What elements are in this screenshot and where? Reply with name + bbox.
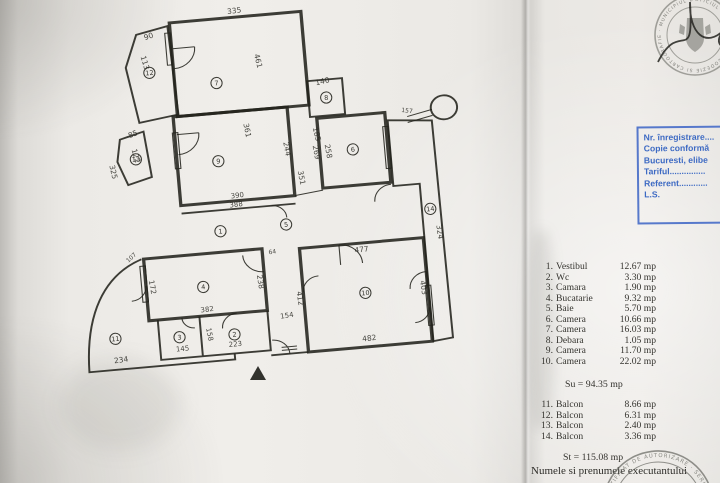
dimension-label: 335	[227, 5, 243, 16]
seal-bottom-curved-text: · CERTIFICAT DE AUTORIZARE · SERIA B ·	[588, 444, 711, 483]
stamp-line: Referent............	[644, 177, 720, 189]
signature-scrawl	[658, 2, 720, 62]
dimension-label: 90	[143, 30, 155, 42]
room-legend: 1. Vestibul 12.67 mp 2. Wc 3.30 mp 3. Ca…	[538, 262, 656, 367]
seal-coat-of-arms	[679, 18, 711, 52]
room-number-text: 8	[324, 94, 329, 102]
dimension-label: 388	[229, 200, 243, 210]
svg-text:OFICIUL DE CADASTRU GEODEZIE S: OFICIUL DE CADASTRU GEODEZIE SI CARTOGRA…	[640, 0, 720, 73]
dimension-label: 238	[255, 274, 266, 290]
dimension-label: 172	[147, 279, 159, 295]
dimension-label: 140	[314, 75, 330, 87]
dimension-label: 403	[418, 280, 429, 296]
room-number-text: 4	[201, 283, 206, 291]
dimension-label: 351	[296, 170, 308, 186]
scanned-cadastral-document: { "document": { "legend": { "rooms": [ {…	[0, 0, 720, 483]
legend-total: St = 115.08 mp	[563, 452, 623, 463]
dimension-label: 85	[127, 128, 140, 140]
dimension-label: 154	[280, 311, 295, 321]
room-area: 12.67 mp	[620, 262, 656, 273]
room-number-text: 10	[361, 289, 370, 298]
executor-name-label: Numele si prenumele executantului	[531, 465, 687, 477]
room-number-text: 3	[177, 333, 182, 341]
room-area: 22.02 mp	[620, 357, 656, 368]
north-arrow-icon	[250, 366, 266, 380]
dimension-label: 461	[252, 53, 264, 69]
room-number-text: 1	[218, 227, 223, 235]
room-name: Vestibul	[556, 262, 587, 273]
legend-row: 10. Camera 22.02 mp	[538, 357, 656, 368]
room-number: 14.	[538, 432, 553, 443]
dimension-label: 269	[311, 144, 323, 160]
room-number: 10.	[538, 357, 553, 368]
dimension-label: 361	[241, 122, 253, 138]
round-seal-bottom: · CERTIFICAT DE AUTORIZARE · SERIA B ·	[588, 444, 720, 483]
dimension-label: 234	[113, 354, 129, 365]
dimension-label: 64	[268, 248, 277, 256]
scan-fold-line	[521, 0, 531, 483]
stamp-line: L.S.	[644, 189, 720, 201]
dimension-label: 382	[200, 305, 214, 315]
room-area: 8.66 mp	[625, 400, 656, 411]
room-number-text: 2	[232, 331, 237, 339]
room-number-text: 14	[426, 205, 435, 214]
dimension-label: 324	[434, 224, 445, 240]
dimension-label: 412	[295, 291, 306, 307]
room-number-text: 9	[216, 157, 221, 165]
blue-registration-stamp: Nr. înregistrare.... Copie conformă Bucu…	[636, 125, 720, 224]
stamp-line: Tariful...............	[644, 166, 720, 178]
room-name: Balcon	[556, 400, 583, 411]
floor-plan-drawing: 3359011346114018536124432512285390388269…	[6, 0, 486, 400]
room-number-text: 13	[131, 155, 140, 164]
legend-row: 1. Vestibul 12.67 mp	[538, 262, 656, 273]
dimension-label: 258	[323, 143, 335, 159]
dimension-label: 185	[311, 126, 323, 142]
room-area: 3.36 mp	[625, 432, 656, 443]
room-number-text: 11	[111, 335, 120, 344]
dimension-label: 482	[362, 333, 378, 344]
round-seal-top: OFICIUL DE CADASTRU GEODEZIE SI CARTOGRA…	[640, 0, 720, 85]
room-name: Camera	[556, 357, 586, 368]
dimension-label: 244	[281, 141, 293, 157]
dimension-label: 390	[230, 191, 244, 201]
stamp-line: Copie conformă	[644, 143, 720, 155]
legend-balcony-list: 11. Balcon 8.66 mp 12. Balcon 6.31 mp 13…	[538, 400, 656, 442]
room-number-text: 12	[145, 69, 154, 78]
svg-text:· CERTIFICAT DE AUTORIZARE · S: · CERTIFICAT DE AUTORIZARE · SERIA B ·	[588, 444, 711, 483]
seal-top-curved-text: OFICIUL DE CADASTRU GEODEZIE SI CARTOGRA…	[640, 0, 720, 73]
dimension-label: 477	[354, 244, 370, 255]
plan-walls	[60, 0, 478, 372]
stamp-line: Bucuresti, elibe	[644, 154, 720, 166]
stamp-line: Nr. înregistrare....	[644, 131, 720, 143]
balcony-legend: 11. Balcon 8.66 mp 12. Balcon 6.31 mp 13…	[538, 400, 656, 442]
room-number-text: 7	[214, 79, 219, 87]
room-number: 1.	[538, 262, 553, 273]
room-number-text: 5	[284, 221, 289, 229]
room-number: 11.	[538, 400, 553, 411]
dimension-label: 158	[204, 327, 214, 342]
dimension-label: 325	[107, 164, 119, 180]
legend-row: 11. Balcon 8.66 mp	[538, 400, 656, 411]
legend-room-list: 1. Vestibul 12.67 mp 2. Wc 3.30 mp 3. Ca…	[538, 262, 656, 367]
dimension-label: 157	[401, 107, 413, 115]
room-number-text: 6	[350, 146, 355, 154]
dimension-label: 145	[176, 344, 190, 353]
dimension-label: 223	[228, 340, 242, 349]
legend-row: 14. Balcon 3.36 mp	[538, 432, 656, 443]
room-name: Balcon	[556, 432, 583, 443]
legend-subtotal: Su = 94.35 mp	[565, 379, 623, 390]
